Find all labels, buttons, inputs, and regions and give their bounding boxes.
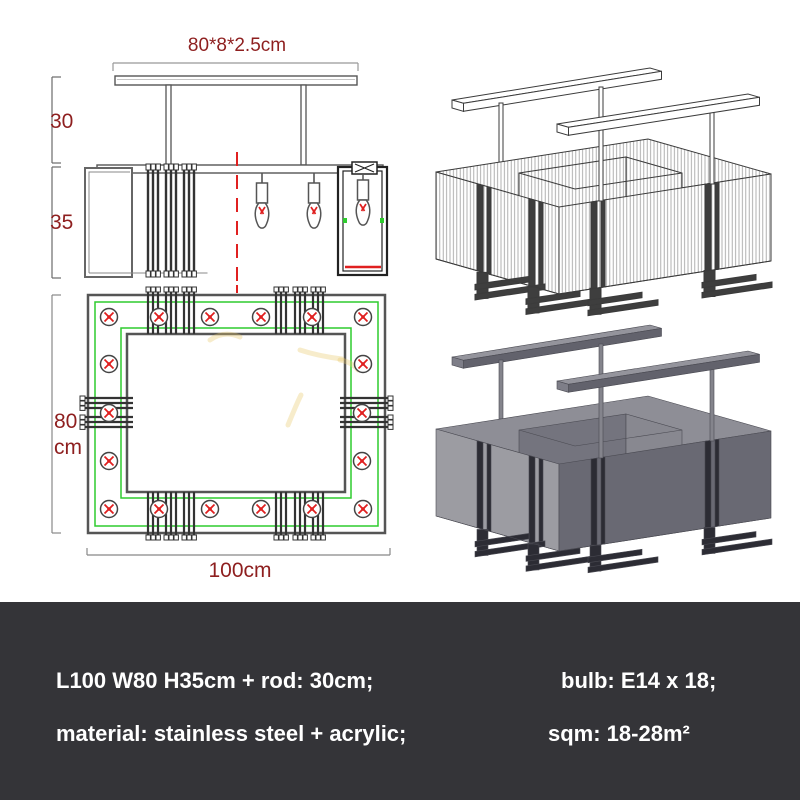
width-value: 80 [54, 409, 82, 435]
length-dimension-label: 100cm [195, 560, 285, 582]
spec-banner: L100 W80 H35cm + rod: 30cm; bulb: E14 x … [0, 602, 800, 800]
wireframe-3d-render [436, 68, 772, 316]
spec-bulb: bulb: E14 x 18; [561, 668, 716, 694]
spec-material: material: stainless steel + acrylic; [56, 721, 406, 747]
front-elevation-drawing [52, 63, 387, 284]
width-dimension-label: 80 cm [54, 409, 82, 461]
shaded-3d-render [436, 325, 772, 573]
rod-length-label: 30 [50, 111, 73, 133]
body-height-label: 35 [50, 212, 73, 234]
spec-size: L100 W80 H35cm + rod: 30cm; [56, 668, 373, 694]
spec-sheet: 80*8*2.5cm 30 35 80 cm 100cm L100 W80 H3… [0, 0, 800, 800]
top-plan-drawing [52, 285, 393, 555]
spec-area: sqm: 18-28m² [548, 721, 690, 747]
plate-dimension-label: 80*8*2.5cm [175, 35, 299, 57]
width-unit: cm [54, 435, 82, 461]
